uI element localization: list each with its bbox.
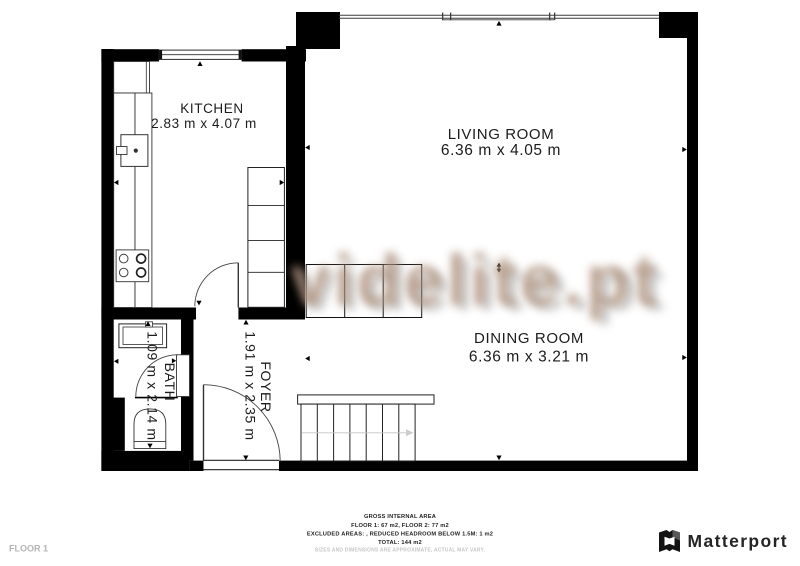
svg-text:TOTAL: 144 m2: TOTAL: 144 m2 <box>378 540 422 546</box>
svg-text:BATH: BATH <box>162 363 178 402</box>
svg-text:videlite.pt: videlite.pt <box>290 241 659 321</box>
svg-text:2.83 m x 4.07 m: 2.83 m x 4.07 m <box>151 116 257 131</box>
svg-text:KITCHEN: KITCHEN <box>180 101 243 116</box>
svg-text:1.91 m x 2.35 m: 1.91 m x 2.35 m <box>242 331 258 440</box>
svg-text:LIVING ROOM: LIVING ROOM <box>448 126 555 143</box>
svg-text:DINING ROOM: DINING ROOM <box>474 330 584 347</box>
svg-text:6.36 m x 3.21 m: 6.36 m x 3.21 m <box>469 349 589 366</box>
svg-text:6.36 m x 4.05 m: 6.36 m x 4.05 m <box>441 142 561 159</box>
svg-text:Matterport: Matterport <box>688 531 789 551</box>
svg-text:FLOOR 1: FLOOR 1 <box>9 544 48 554</box>
svg-text:GROSS INTERNAL AREA: GROSS INTERNAL AREA <box>364 514 436 520</box>
svg-text:EXCLUDED AREAS: , REDUCED HEAD: EXCLUDED AREAS: , REDUCED HEADROOM BELOW… <box>307 532 493 538</box>
svg-text:FOYER: FOYER <box>258 361 274 412</box>
svg-text:1.09 m x 2.14 m: 1.09 m x 2.14 m <box>144 331 160 440</box>
svg-text:SIZES AND DIMENSIONS ARE APPRO: SIZES AND DIMENSIONS ARE APPROXIMATE, AC… <box>315 547 486 553</box>
svg-text:FLOOR 1: 67 m2, FLOOR 2: 77 m2: FLOOR 1: 67 m2, FLOOR 2: 77 m2 <box>351 523 449 529</box>
